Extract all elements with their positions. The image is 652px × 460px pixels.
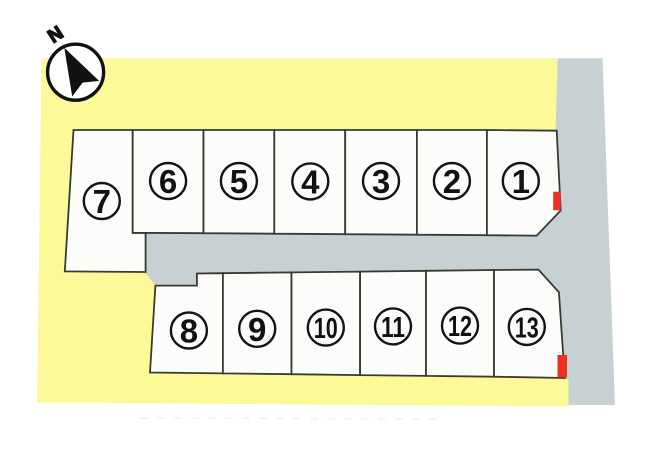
svg-text:3: 3 [372, 163, 390, 200]
svg-text:13: 13 [515, 312, 539, 344]
svg-text:7: 7 [93, 183, 111, 220]
svg-text:1: 1 [512, 163, 530, 200]
svg-text:6: 6 [159, 163, 177, 200]
svg-text:2: 2 [443, 163, 461, 200]
svg-text:11: 11 [381, 312, 405, 344]
svg-text:8: 8 [180, 313, 198, 350]
svg-text:10: 10 [314, 313, 338, 345]
svg-text:12: 12 [448, 311, 472, 343]
svg-text:9: 9 [248, 311, 266, 348]
svg-text:5: 5 [230, 163, 248, 200]
svg-text:4: 4 [301, 163, 320, 200]
